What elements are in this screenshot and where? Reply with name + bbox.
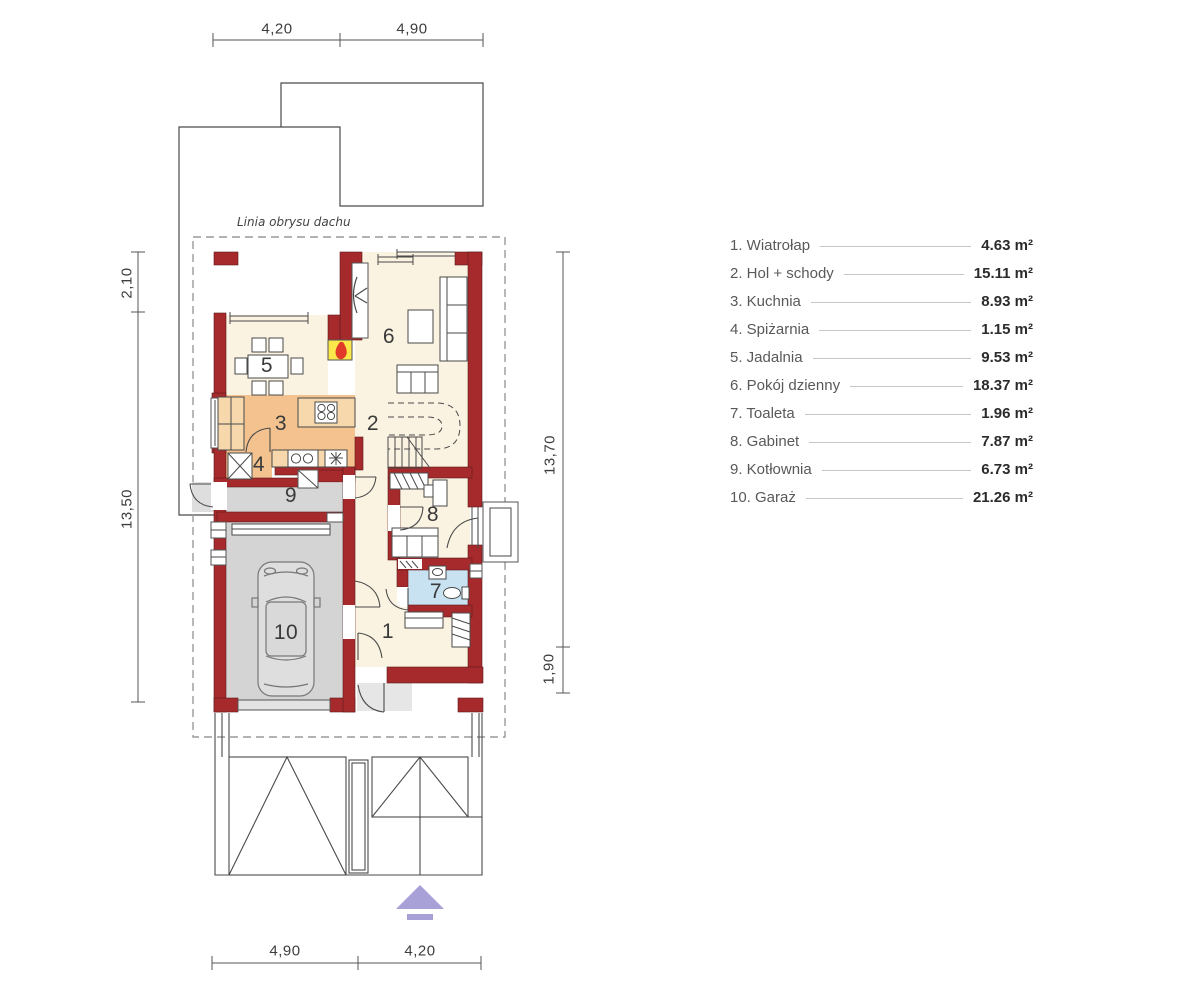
legend-row: 2. Hol + schody 15.11 m²	[730, 259, 1033, 287]
room-area: 6.73 m²	[981, 461, 1033, 478]
room-label: 9. Kotłownia	[730, 461, 812, 478]
dim-bottom-right: 4,20	[404, 943, 435, 960]
room-legend: 1. Wiatrołap 4.63 m² 2. Hol + schody 15.…	[730, 231, 1033, 511]
legend-connector	[820, 246, 971, 247]
room-label: 2. Hol + schody	[730, 265, 834, 282]
room-label: 6. Pokój dzienny	[730, 377, 840, 394]
room-area: 18.37 m²	[973, 377, 1033, 394]
dim-top-left: 4,20	[261, 21, 292, 38]
legend-row: 10. Garaż 21.26 m²	[730, 483, 1033, 511]
legend-connector	[809, 442, 971, 443]
legend-row: 9. Kotłownia 6.73 m²	[730, 455, 1033, 483]
dim-left-upper: 2,10	[119, 267, 136, 298]
room-number-4: 4	[253, 453, 265, 477]
room-number-6: 6	[383, 325, 395, 349]
legend-row: 6. Pokój dzienny 18.37 m²	[730, 371, 1033, 399]
room-number-2: 2	[367, 412, 379, 436]
legend-connector	[844, 274, 964, 275]
entrance-arrow-icon	[396, 885, 444, 920]
room-area: 15.11 m²	[974, 265, 1033, 282]
legend-connector	[822, 470, 972, 471]
room-label: 3. Kuchnia	[730, 293, 801, 310]
dim-top-right: 4,90	[396, 21, 427, 38]
legend-connector	[811, 302, 971, 303]
room-number-7: 7	[430, 580, 442, 604]
legend-row: 8. Gabinet 7.87 m²	[730, 427, 1033, 455]
room-label: 1. Wiatrołap	[730, 237, 810, 254]
legend-connector	[819, 330, 971, 331]
legend-row: 5. Jadalnia 9.53 m²	[730, 343, 1033, 371]
floor-plan-page: Linia obrysu dachu 1 2 3 4 5 6 7 8 9 10 …	[0, 0, 1200, 1000]
room-area: 9.53 m²	[981, 349, 1033, 366]
room-area: 1.15 m²	[981, 321, 1033, 338]
room-area: 1.96 m²	[981, 405, 1033, 422]
dim-right-upper: 13,70	[542, 435, 559, 475]
legend-row: 1. Wiatrołap 4.63 m²	[730, 231, 1033, 259]
room-number-5: 5	[261, 354, 273, 378]
room-label: 4. Spiżarnia	[730, 321, 809, 338]
room-area: 7.87 m²	[981, 433, 1033, 450]
room-label: 7. Toaleta	[730, 405, 795, 422]
room-number-1: 1	[382, 620, 394, 644]
room-label: 10. Garaż	[730, 489, 796, 506]
room-area: 21.26 m²	[973, 489, 1033, 506]
legend-row: 7. Toaleta 1.96 m²	[730, 399, 1033, 427]
legend-connector	[850, 386, 963, 387]
legend-connector	[813, 358, 972, 359]
legend-connector	[806, 498, 963, 499]
room-number-10: 10	[274, 621, 298, 645]
legend-row: 3. Kuchnia 8.93 m²	[730, 287, 1033, 315]
legend-row: 4. Spiżarnia 1.15 m²	[730, 315, 1033, 343]
room-number-8: 8	[427, 503, 439, 527]
dim-left-lower: 13,50	[119, 489, 136, 529]
legend-connector	[805, 414, 972, 415]
room-area: 4.63 m²	[981, 237, 1033, 254]
room-number-3: 3	[275, 412, 287, 436]
room-number-9: 9	[285, 484, 297, 508]
room-area: 8.93 m²	[981, 293, 1033, 310]
room-label: 5. Jadalnia	[730, 349, 803, 366]
dim-right-lower: 1,90	[541, 653, 558, 684]
roof-outline-label: Linia obrysu dachu	[237, 215, 351, 229]
room-label: 8. Gabinet	[730, 433, 799, 450]
dim-bottom-left: 4,90	[269, 943, 300, 960]
